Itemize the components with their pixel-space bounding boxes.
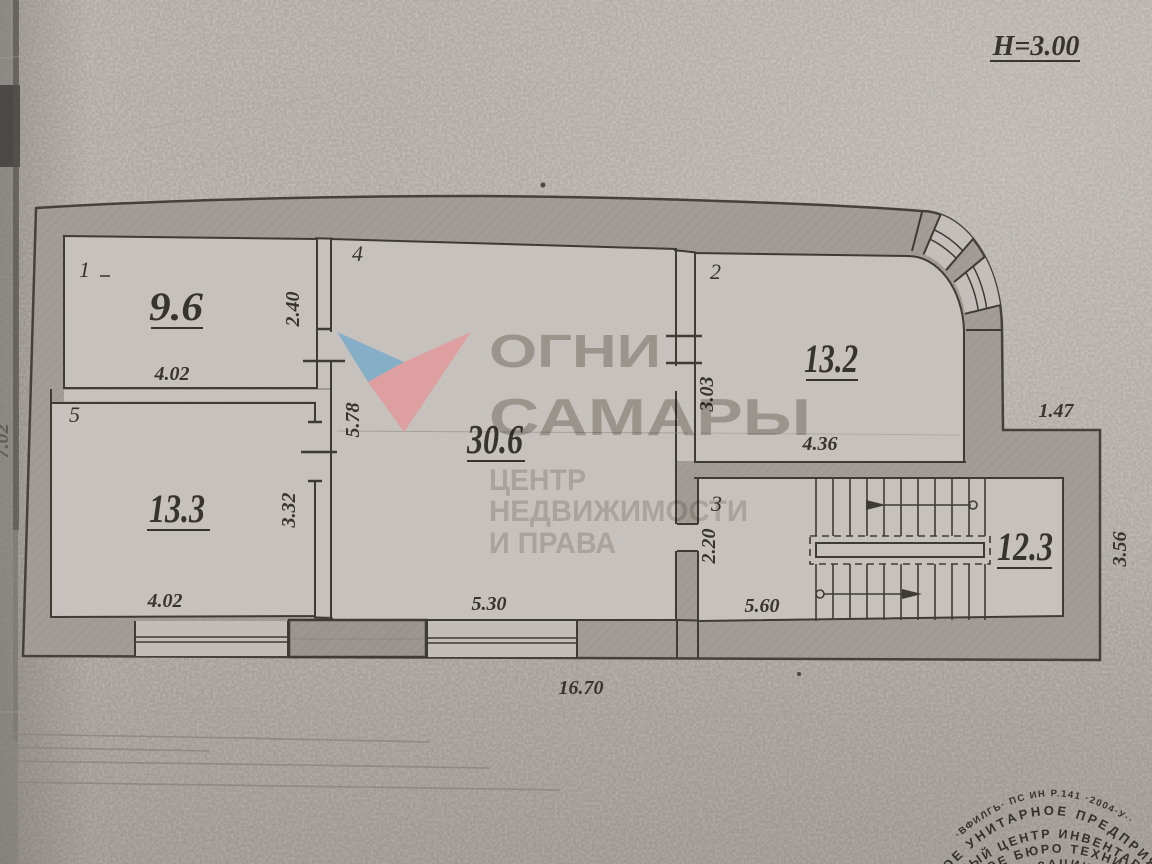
svg-text:4.02: 4.02	[147, 590, 183, 612]
svg-text:13.2: 13.2	[804, 336, 858, 381]
svg-text:ОГНИ: ОГНИ	[489, 325, 661, 377]
svg-text:5.60: 5.60	[745, 595, 780, 617]
svg-text:4.02: 4.02	[154, 363, 190, 385]
svg-text:16.70: 16.70	[559, 677, 604, 699]
svg-text:H=3.00: H=3.00	[992, 31, 1080, 62]
svg-text:2.20: 2.20	[698, 529, 720, 565]
svg-text:НЕДВИЖИМОСТИ: НЕДВИЖИМОСТИ	[489, 495, 748, 528]
svg-text:9.6: 9.6	[149, 284, 203, 329]
svg-text:2: 2	[710, 259, 721, 284]
svg-text:3.32: 3.32	[278, 493, 300, 529]
svg-text:ЦЕНТР: ЦЕНТР	[489, 464, 586, 497]
svg-text:2.40: 2.40	[282, 292, 304, 328]
svg-text:12.3: 12.3	[997, 524, 1053, 569]
svg-text:САМАРЫ: САМАРЫ	[489, 389, 811, 447]
svg-text:1.47: 1.47	[1039, 400, 1075, 422]
svg-text:И ПРАВА: И ПРАВА	[489, 527, 616, 560]
svg-text:3.56: 3.56	[1109, 532, 1131, 568]
svg-text:4: 4	[352, 241, 363, 266]
svg-text:5: 5	[69, 402, 80, 427]
svg-text:1: 1	[79, 257, 90, 282]
svg-text:5.78: 5.78	[342, 403, 364, 438]
svg-text:5.30: 5.30	[472, 593, 507, 615]
svg-text:13.3: 13.3	[149, 486, 205, 531]
